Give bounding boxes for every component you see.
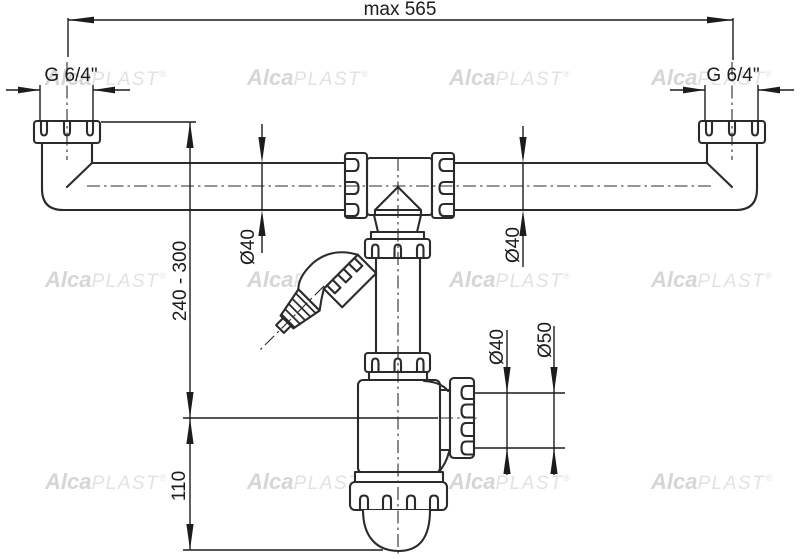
trap-cup bbox=[358, 380, 440, 473]
trap-body bbox=[350, 353, 474, 551]
dimension-max-width: max 565 bbox=[68, 0, 733, 60]
dimension-pipe-diameter-right: Ø40 bbox=[503, 126, 527, 267]
thread-size-label-left: G 6/4" bbox=[44, 65, 97, 86]
dim-max-width-label: max 565 bbox=[364, 0, 437, 20]
dim-pipe-diameter-left-label: Ø40 bbox=[238, 229, 259, 265]
thread-size-label-right: G 6/4" bbox=[706, 65, 759, 86]
siphon-drawing-svg: max 565 G 6/4" G 6/4" 240 - 300 bbox=[0, 0, 800, 559]
tee-fitting bbox=[345, 153, 454, 258]
dimension-outlet-diameters: Ø40 Ø50 bbox=[475, 322, 565, 475]
trap-dome-cup bbox=[363, 510, 430, 551]
dimension-thread-left: G 6/4" bbox=[6, 65, 130, 121]
dim-trap-height-label: 110 bbox=[169, 471, 190, 501]
dim-outlet-bore-label: Ø40 bbox=[487, 329, 508, 365]
dim-height-range-label: 240 - 300 bbox=[170, 241, 191, 321]
dim-outlet-nut-label: Ø50 bbox=[535, 322, 556, 358]
dim-pipe-diameter-right-label: Ø40 bbox=[503, 227, 524, 263]
washing-machine-branch bbox=[276, 252, 376, 333]
dimension-height-range: 240 - 300 bbox=[101, 122, 196, 418]
dimension-pipe-diameter-left: Ø40 bbox=[238, 124, 266, 265]
technical-drawing: AlcaPLAST® AlcaPLAST® AlcaPLAST® AlcaPLA… bbox=[0, 0, 800, 559]
